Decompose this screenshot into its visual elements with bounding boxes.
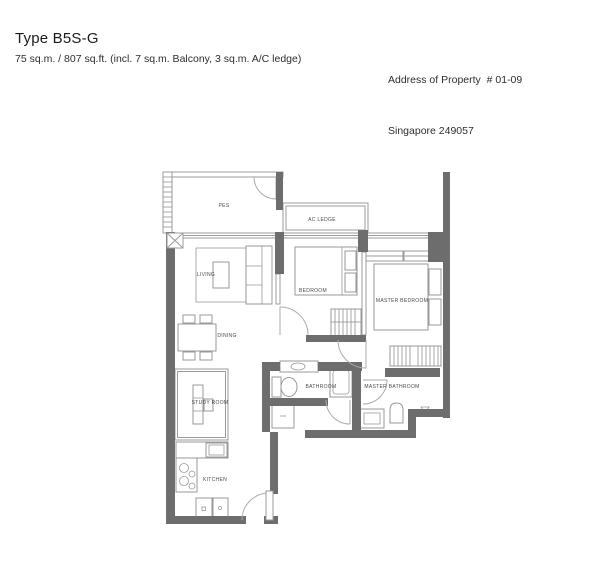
wall-foyer-right xyxy=(270,432,278,494)
master-pillow xyxy=(429,299,441,325)
wall-bathroom-bottom xyxy=(270,398,328,406)
master-toilet xyxy=(390,403,403,423)
bathroom-label: BATHROOM xyxy=(306,384,337,390)
bathroom-door-arc xyxy=(326,400,350,424)
bathroom-toilet-bowl xyxy=(281,378,297,397)
dining-chair xyxy=(200,352,212,360)
pes-side-trellis xyxy=(163,172,172,233)
bedroom-label: BEDROOM xyxy=(299,288,327,294)
kitchen-counter-side xyxy=(176,458,197,492)
master-bedroom-furniture xyxy=(374,264,441,366)
kitchen-label: KITCHEN xyxy=(203,477,227,483)
bedroom-pillow xyxy=(345,251,356,270)
floor-plan-page: Type B5S-G 75 sq.m. / 807 sq.ft. (incl. … xyxy=(0,0,600,580)
fridge xyxy=(213,498,228,518)
living-label: LIVING xyxy=(197,272,215,278)
foyer-fixtures xyxy=(272,404,294,428)
wall-right xyxy=(443,172,450,418)
wall-top-right-chunk xyxy=(428,232,443,262)
wall-bathroom-left xyxy=(262,362,270,432)
master-bathroom-label: MASTER BATHROOM xyxy=(364,384,419,390)
wall-pes-acledge xyxy=(276,172,283,210)
bedroom-wardrobe xyxy=(331,309,361,336)
wall-bathrooms-divider xyxy=(352,366,361,432)
bedroom-pillow xyxy=(345,273,356,292)
dining-label: DINING xyxy=(217,333,236,339)
master-bedroom-label: MASTER BEDROOM xyxy=(376,298,428,304)
pes-top-fence xyxy=(172,172,283,177)
coffee-table xyxy=(213,262,229,288)
wall-bathroom-top-left xyxy=(262,362,280,371)
wall-bedroom-bottom xyxy=(306,335,366,342)
dining-chair xyxy=(183,352,195,360)
entrance-door-arc xyxy=(242,493,269,520)
wall-step-horizontal xyxy=(412,409,450,417)
wall-left xyxy=(166,232,175,524)
pes-door-arc xyxy=(254,177,276,199)
master-pillow xyxy=(429,269,441,295)
corridor-jamb xyxy=(276,274,280,304)
wall-living-bedroom xyxy=(275,232,284,274)
entrance-door-leaf xyxy=(266,491,273,520)
bedroom-divider-wall xyxy=(362,252,366,335)
dining-table xyxy=(178,324,216,351)
wall-master-bathroom-top xyxy=(385,368,440,377)
floor-plan-drawing: PES AC LEDGE LIVING DINING BEDROOM MASTE… xyxy=(0,0,600,580)
bedroom-door-arc xyxy=(280,307,308,335)
dining-furniture xyxy=(178,315,216,360)
pes-label: PES xyxy=(219,203,230,209)
master-bed xyxy=(374,264,428,330)
room-labels: PES AC LEDGE LIVING DINING BEDROOM MASTE… xyxy=(192,203,429,483)
wall-bedroom-master-top xyxy=(358,230,368,252)
washer xyxy=(196,498,212,518)
dining-chair xyxy=(183,315,195,323)
wall-bottom xyxy=(166,516,246,524)
dining-chair xyxy=(200,315,212,323)
ac-ledge-label: AC LEDGE xyxy=(308,217,336,223)
sofa xyxy=(246,246,272,304)
bathroom-toilet-tank xyxy=(272,377,281,397)
study-room-label: STUDY ROOM xyxy=(192,400,229,406)
